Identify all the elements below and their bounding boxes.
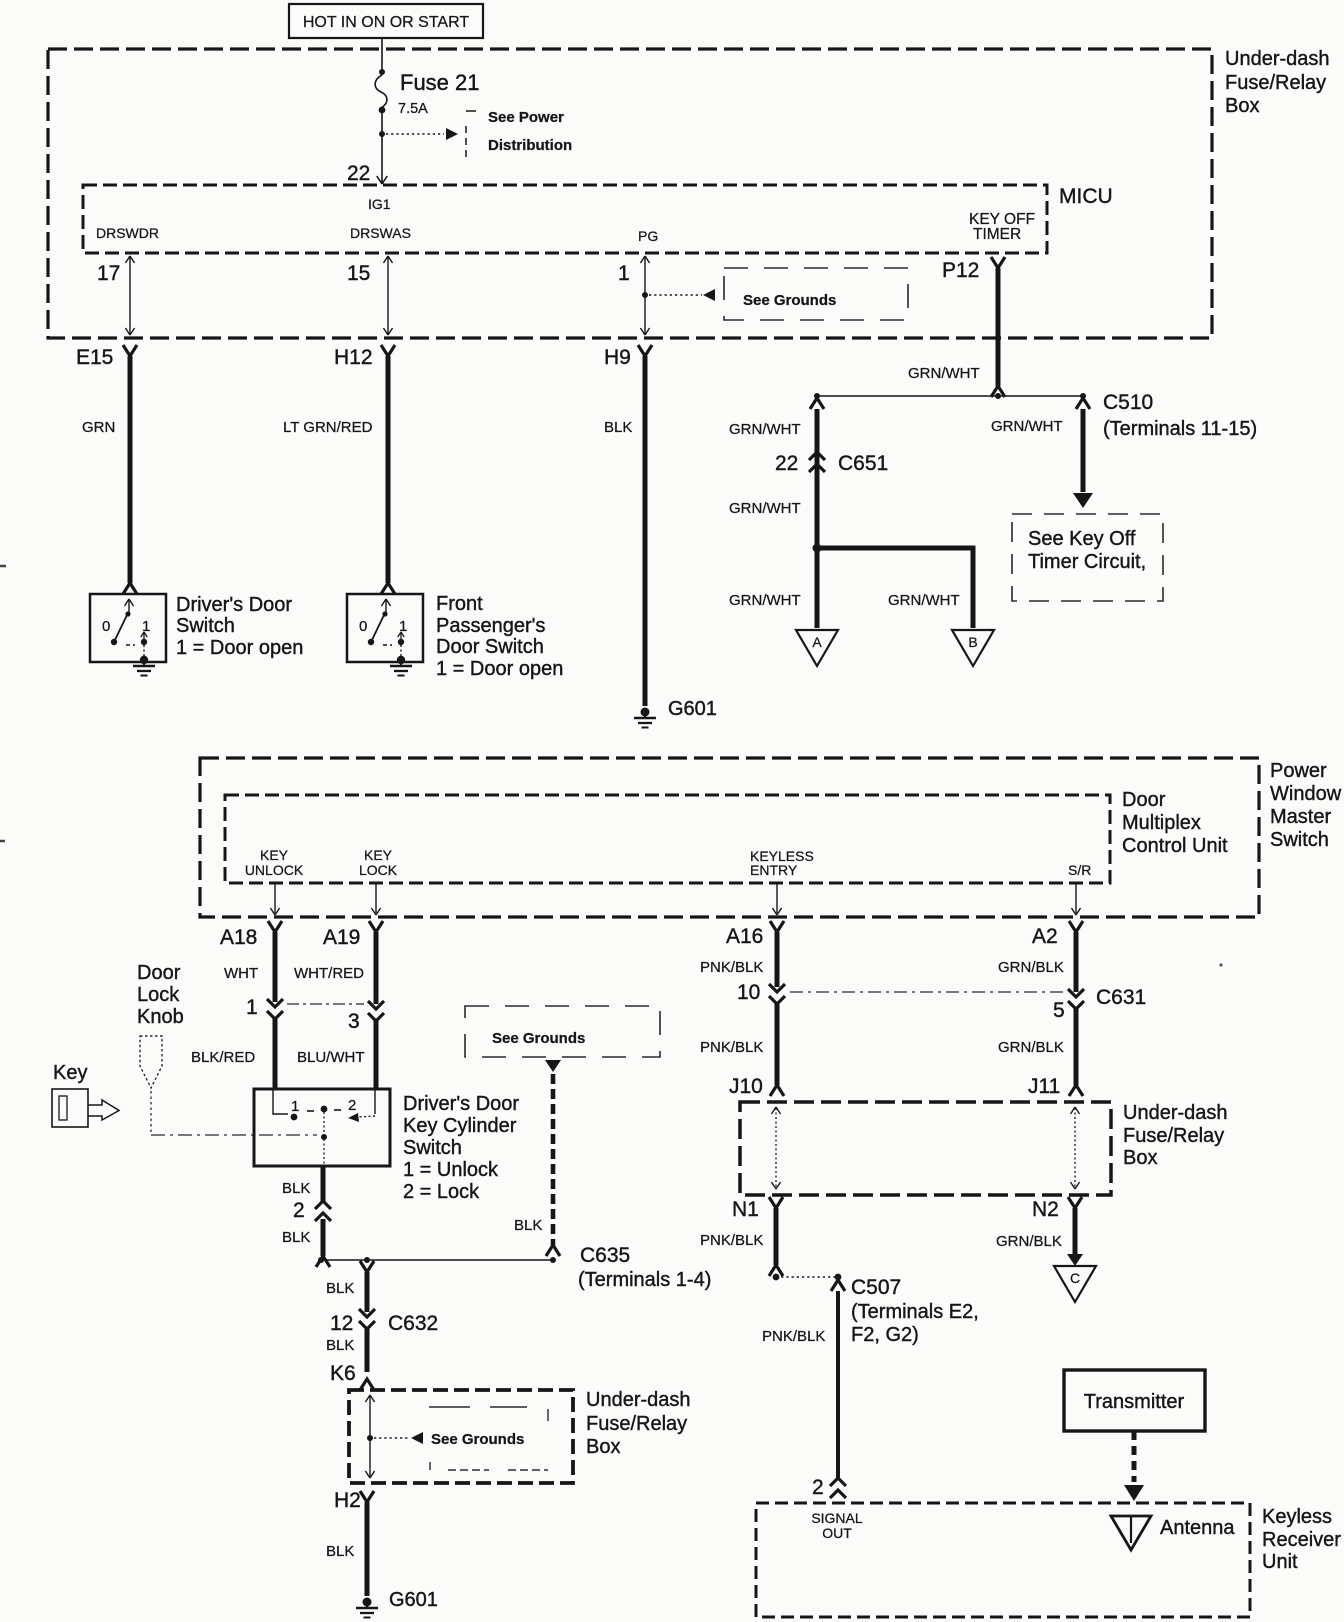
svg-text:0: 0 — [102, 618, 110, 635]
svg-text:2 = Lock: 2 = Lock — [403, 1181, 480, 1203]
svg-text:G601: G601 — [668, 698, 717, 720]
svg-text:See Grounds: See Grounds — [431, 1431, 524, 1448]
svg-text:12: 12 — [330, 1312, 353, 1335]
svg-text:ENTRY: ENTRY — [750, 862, 798, 878]
svg-text:C635: C635 — [580, 1244, 630, 1267]
svg-text:Driver's Door: Driver's Door — [403, 1093, 519, 1115]
svg-text:F2, G2): F2, G2) — [851, 1324, 919, 1346]
svg-text:Box: Box — [1123, 1147, 1157, 1169]
svg-text:Switch: Switch — [1270, 829, 1329, 851]
svg-text:P12: P12 — [942, 259, 979, 282]
svg-text:Door: Door — [137, 962, 181, 984]
svg-text:Fuse/Relay: Fuse/Relay — [586, 1413, 687, 1435]
svg-text:KEY: KEY — [364, 847, 393, 863]
svg-text:BLK: BLK — [326, 1280, 354, 1297]
svg-text:Control Unit: Control Unit — [1122, 835, 1228, 857]
svg-text:GRN/WHT: GRN/WHT — [991, 418, 1063, 435]
svg-text:Fuse/Relay: Fuse/Relay — [1225, 72, 1326, 94]
svg-text:0: 0 — [359, 618, 367, 635]
svg-text:1 = Door open: 1 = Door open — [436, 658, 563, 680]
svg-text:A18: A18 — [220, 926, 257, 949]
svg-text:10: 10 — [737, 981, 760, 1004]
svg-text:See Key Off: See Key Off — [1028, 528, 1136, 550]
svg-text:PNK/BLK: PNK/BLK — [762, 1328, 825, 1345]
svg-text:1: 1 — [291, 1098, 299, 1115]
svg-text:Timer Circuit,: Timer Circuit, — [1028, 551, 1146, 573]
svg-text:HOT IN ON OR START: HOT IN ON OR START — [303, 14, 469, 31]
svg-text:GRN/WHT: GRN/WHT — [888, 592, 960, 609]
svg-text:KEY: KEY — [260, 847, 289, 863]
svg-text:OUT: OUT — [822, 1525, 852, 1541]
svg-text:TIMER: TIMER — [973, 226, 1021, 243]
svg-text:1 = Unlock: 1 = Unlock — [403, 1159, 499, 1181]
svg-text:2: 2 — [293, 1199, 305, 1222]
svg-text:(Terminals 1-4): (Terminals 1-4) — [578, 1269, 711, 1291]
svg-text:Door Switch: Door Switch — [436, 636, 544, 658]
svg-text:BLU/WHT: BLU/WHT — [297, 1049, 365, 1066]
svg-text:Door: Door — [1122, 789, 1166, 811]
svg-text:Box: Box — [586, 1436, 620, 1458]
svg-text:Keyless: Keyless — [1262, 1506, 1332, 1528]
svg-text:5: 5 — [1053, 999, 1065, 1022]
svg-text:N1: N1 — [732, 1198, 759, 1221]
svg-text:Under-dash: Under-dash — [1225, 48, 1330, 70]
svg-text:PNK/BLK: PNK/BLK — [700, 959, 763, 976]
svg-text:3: 3 — [348, 1010, 360, 1033]
svg-text:LT GRN/RED: LT GRN/RED — [283, 419, 373, 436]
svg-text:Key: Key — [53, 1062, 87, 1084]
svg-text:Receiver: Receiver — [1262, 1529, 1341, 1551]
svg-text:GRN/WHT: GRN/WHT — [729, 592, 801, 609]
svg-text:Under-dash: Under-dash — [586, 1389, 691, 1411]
svg-text:WHT/RED: WHT/RED — [294, 965, 364, 982]
svg-text:Lock: Lock — [137, 984, 180, 1006]
svg-text:Master: Master — [1270, 806, 1331, 828]
svg-text:GRN/WHT: GRN/WHT — [729, 500, 801, 517]
svg-text:K6: K6 — [330, 1362, 356, 1385]
svg-text:A16: A16 — [726, 925, 763, 948]
svg-text:Power: Power — [1270, 760, 1327, 782]
svg-text:BLK: BLK — [326, 1543, 354, 1560]
svg-text:GRN/WHT: GRN/WHT — [908, 365, 980, 382]
svg-text:MICU: MICU — [1059, 185, 1113, 208]
svg-text:A19: A19 — [323, 926, 360, 949]
svg-text:DRSWDR: DRSWDR — [96, 225, 159, 241]
svg-text:B: B — [968, 634, 977, 650]
svg-text:2: 2 — [812, 1476, 824, 1499]
svg-text:BLK: BLK — [282, 1180, 310, 1197]
svg-text:GRN/BLK: GRN/BLK — [998, 959, 1064, 976]
svg-text:7.5A: 7.5A — [398, 101, 428, 117]
svg-text:DRSWAS: DRSWAS — [350, 225, 411, 241]
svg-text:17: 17 — [97, 262, 120, 285]
svg-text:Transmitter: Transmitter — [1084, 1391, 1185, 1413]
svg-text:Switch: Switch — [403, 1137, 462, 1159]
svg-text:GRN: GRN — [82, 419, 115, 436]
svg-text:1 = Door open: 1 = Door open — [176, 637, 303, 659]
svg-text:22: 22 — [347, 162, 370, 185]
svg-text:2: 2 — [348, 1097, 356, 1114]
svg-text:Knob: Knob — [137, 1006, 184, 1028]
svg-text:GRN/BLK: GRN/BLK — [998, 1039, 1064, 1056]
svg-text:(Terminals E2,: (Terminals E2, — [851, 1301, 979, 1323]
svg-text:See Grounds: See Grounds — [492, 1030, 585, 1047]
svg-text:BLK: BLK — [282, 1229, 310, 1246]
svg-text:BLK: BLK — [514, 1217, 542, 1234]
svg-text:Front: Front — [436, 593, 483, 615]
svg-text:1: 1 — [246, 996, 258, 1019]
svg-text:C: C — [1070, 1270, 1080, 1286]
svg-text:Multiplex: Multiplex — [1122, 812, 1201, 834]
svg-text:Distribution: Distribution — [488, 137, 572, 154]
svg-text:Window: Window — [1270, 783, 1342, 805]
svg-text:Fuse 21: Fuse 21 — [400, 70, 480, 95]
svg-text:PNK/BLK: PNK/BLK — [700, 1232, 763, 1249]
svg-text:See Grounds: See Grounds — [743, 292, 836, 309]
svg-text:1: 1 — [618, 262, 630, 285]
svg-text:BLK: BLK — [604, 419, 632, 436]
svg-text:C651: C651 — [838, 452, 888, 475]
svg-text:SIGNAL: SIGNAL — [811, 1510, 863, 1526]
svg-text:GRN/BLK: GRN/BLK — [996, 1233, 1062, 1250]
svg-text:Unit: Unit — [1262, 1551, 1298, 1573]
svg-text:H9: H9 — [604, 346, 631, 369]
svg-text:S/R: S/R — [1068, 862, 1091, 878]
svg-text:N2: N2 — [1032, 1198, 1059, 1221]
svg-text:WHT: WHT — [224, 965, 258, 982]
svg-text:J10: J10 — [729, 1075, 763, 1098]
svg-text:LOCK: LOCK — [359, 862, 398, 878]
svg-text:J11: J11 — [1028, 1075, 1060, 1098]
svg-text:E15: E15 — [76, 346, 113, 369]
svg-text:(Terminals 11-15): (Terminals 11-15) — [1103, 418, 1257, 440]
svg-text:C632: C632 — [388, 1312, 438, 1335]
svg-text:22: 22 — [775, 452, 798, 475]
svg-text:Antenna: Antenna — [1160, 1517, 1235, 1539]
svg-text:G601: G601 — [389, 1589, 438, 1611]
svg-text:Under-dash: Under-dash — [1123, 1102, 1228, 1124]
svg-text:A: A — [812, 634, 822, 650]
svg-text:PNK/BLK: PNK/BLK — [700, 1039, 763, 1056]
svg-text:IG1: IG1 — [368, 196, 391, 212]
svg-text:A2: A2 — [1032, 925, 1058, 948]
svg-text:Switch: Switch — [176, 615, 235, 637]
svg-text:BLK: BLK — [326, 1337, 354, 1354]
svg-text:15: 15 — [347, 262, 370, 285]
svg-text:C507: C507 — [851, 1276, 901, 1299]
svg-text:GRN/WHT: GRN/WHT — [729, 421, 801, 438]
svg-text:H12: H12 — [334, 346, 373, 369]
svg-text:BLK/RED: BLK/RED — [191, 1049, 255, 1066]
svg-text:Fuse/Relay: Fuse/Relay — [1123, 1125, 1224, 1147]
svg-text:C631: C631 — [1096, 986, 1146, 1009]
svg-text:Driver's Door: Driver's Door — [176, 594, 292, 616]
svg-text:Passenger's: Passenger's — [436, 615, 545, 637]
svg-text:Box: Box — [1225, 95, 1259, 117]
svg-text:See Power: See Power — [488, 109, 564, 126]
svg-text:PG: PG — [638, 228, 658, 244]
svg-text:C510: C510 — [1103, 391, 1153, 414]
svg-text:UNLOCK: UNLOCK — [245, 862, 304, 878]
svg-text:Key Cylinder: Key Cylinder — [403, 1115, 517, 1137]
svg-text:H2: H2 — [334, 1489, 361, 1512]
